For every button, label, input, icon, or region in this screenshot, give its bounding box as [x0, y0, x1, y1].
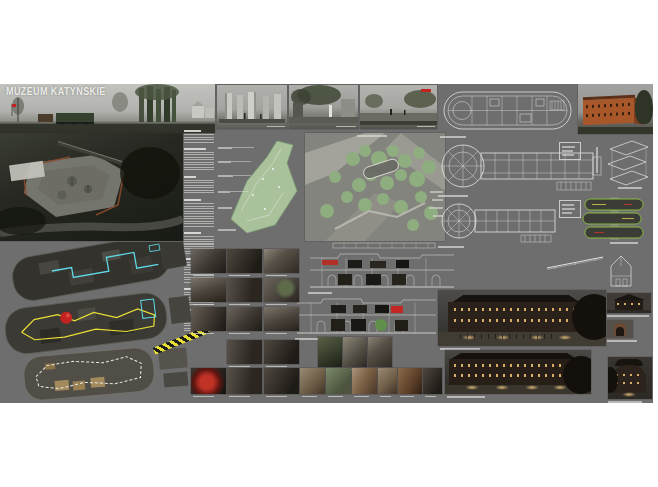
axon-label [218, 147, 232, 149]
photo-thumb [227, 307, 262, 331]
axon-label [218, 229, 236, 231]
render-entry [289, 85, 358, 129]
roof-plan-art [332, 242, 436, 249]
render-caption [608, 401, 642, 403]
thumb-caption-bar [302, 396, 317, 397]
green-exhibit [375, 319, 387, 331]
axon-level-low [22, 343, 189, 401]
monoliths-art [217, 85, 287, 129]
photo-thumb [227, 249, 262, 273]
floor-plan-3 [437, 199, 563, 244]
paragraph-heading-bar [184, 232, 201, 234]
render-landscape [360, 85, 437, 129]
paragraph-heading-bar [184, 148, 206, 150]
thumb-caption-bar [193, 275, 214, 276]
green-site-plan [305, 133, 445, 241]
photo-thumb [343, 337, 367, 367]
axon-label [218, 207, 232, 209]
thumb-caption-bar [193, 304, 214, 305]
exhibit-inserts [322, 260, 409, 285]
thumb-caption-bar [354, 396, 369, 397]
thumb-caption-bar [266, 304, 287, 305]
photo-thumb [318, 337, 342, 367]
paragraph-heading-bar [184, 176, 196, 178]
presentation-board: MUZEUM KATYŃSKIE [0, 84, 653, 403]
axon-plans-stack [0, 242, 192, 403]
paragraph-text-lines [184, 134, 214, 144]
thumb-caption-bar [400, 396, 414, 397]
thumb-caption-bar [380, 396, 391, 397]
tree-silhouette [563, 356, 591, 394]
caption-bar [357, 135, 387, 137]
exploded-axon-green [578, 197, 650, 240]
photo-thumb [227, 278, 262, 302]
gable-end-render [607, 293, 651, 313]
thumb-caption-bar [229, 304, 250, 305]
thumb-caption-bar [229, 366, 250, 367]
cross-section-drawing [608, 252, 634, 289]
plan-caption [440, 136, 466, 138]
night-facade [449, 359, 579, 385]
aerial-render [0, 133, 183, 241]
thumb-caption-bar [266, 396, 287, 397]
photo-thumb [398, 368, 422, 394]
green-axon-art [217, 133, 303, 241]
page-title: MUZEUM KATYŃSKIE [6, 86, 106, 98]
caption-bar [417, 126, 435, 128]
axon-label [218, 161, 231, 163]
red-flag-mark [421, 89, 431, 92]
axon-caption [610, 242, 638, 244]
photo-thumb [264, 340, 299, 364]
exhibit-inserts [331, 305, 408, 331]
caption-bar [336, 126, 356, 128]
photo-thumb [191, 278, 226, 302]
roof-plan-strip [332, 242, 436, 249]
paragraph-text-lines [184, 180, 214, 195]
photo-thumb [423, 368, 442, 394]
photo-thumb [264, 278, 299, 302]
cross-section-art [608, 252, 634, 289]
axon-caption [618, 187, 642, 189]
green-axon-diagram [217, 133, 303, 241]
description-text-column [184, 130, 216, 248]
axon-plans-art [0, 242, 192, 403]
paragraph-heading-bar [184, 199, 201, 201]
photo-thumb [227, 340, 262, 364]
night-render-2 [445, 350, 591, 394]
section-b-art [295, 294, 438, 336]
brick-building-photo [578, 84, 653, 134]
photo-thumb [300, 368, 325, 394]
render-caption [447, 396, 485, 398]
aerial-art [0, 133, 183, 241]
axon-label [218, 175, 233, 177]
exploded-axon-green-art [578, 197, 650, 240]
tree-mass [635, 90, 653, 124]
exploded-axon-white [600, 137, 653, 189]
red-exhibit [391, 306, 403, 313]
photo-thumb [264, 368, 299, 394]
section-drawing-a [308, 250, 456, 290]
photo-thumb [191, 307, 226, 331]
panorama-buildings [192, 101, 214, 118]
brick-facade [583, 98, 635, 126]
plan-caption [438, 195, 468, 197]
site-plan-art [305, 133, 445, 241]
thumb-caption-bar [266, 275, 287, 276]
render-caption [607, 315, 649, 317]
thumb-caption-bar [266, 366, 287, 367]
roof [450, 295, 582, 302]
thumb-caption-bar [328, 396, 343, 397]
floor-plan-1 [440, 87, 577, 134]
photo-thumb [191, 368, 226, 394]
paragraph-text-lines [184, 203, 214, 228]
section-drawing-b [295, 294, 438, 336]
screenshot-root: { "board": { "title": "MUZEUM KATYŃSKIE"… [0, 0, 658, 487]
legend-box [559, 142, 581, 160]
thumb-caption-bar [193, 396, 214, 397]
axon-label [218, 191, 230, 193]
caption-bar [267, 126, 285, 128]
fort-site-shape [231, 141, 297, 233]
photo-thumb [191, 249, 226, 273]
exploded-axon-white-art [600, 137, 653, 189]
night-facade [448, 302, 584, 332]
thumb-caption-bar [229, 275, 250, 276]
thumb-caption-bar [266, 333, 287, 334]
plan-caption [438, 246, 464, 248]
section-a-art [308, 250, 456, 290]
axon-level-top [9, 242, 188, 304]
floor-plan-1-art [440, 87, 577, 134]
photo-thumb [368, 337, 392, 367]
photo-thumb [352, 368, 377, 394]
render-caption [607, 340, 637, 342]
photo-thumb [264, 249, 299, 273]
thumb-caption-bar [425, 396, 436, 397]
ramp-section-drawing [545, 254, 605, 270]
render-monoliths [217, 85, 287, 129]
paragraph-heading-bar [184, 130, 201, 132]
ramp-section-art [545, 254, 605, 270]
round-tower-night-render [608, 357, 652, 399]
paragraph-text-lines [184, 152, 214, 172]
people-silhouettes [460, 334, 556, 339]
vertical-caption [596, 147, 598, 173]
thumb-caption-bar [229, 396, 250, 397]
photo-thumb [378, 368, 397, 394]
thumb-caption-bar [193, 333, 214, 334]
panorama-train [38, 113, 94, 126]
photo-thumb [264, 307, 299, 331]
arch-portal-render [607, 320, 633, 338]
night-render-1 [438, 290, 606, 346]
photo-thumb [326, 368, 351, 394]
photo-thumb [227, 368, 262, 394]
floor-plan-3-art [437, 199, 563, 244]
thumb-caption-bar [229, 333, 250, 334]
entry-art [289, 85, 358, 129]
